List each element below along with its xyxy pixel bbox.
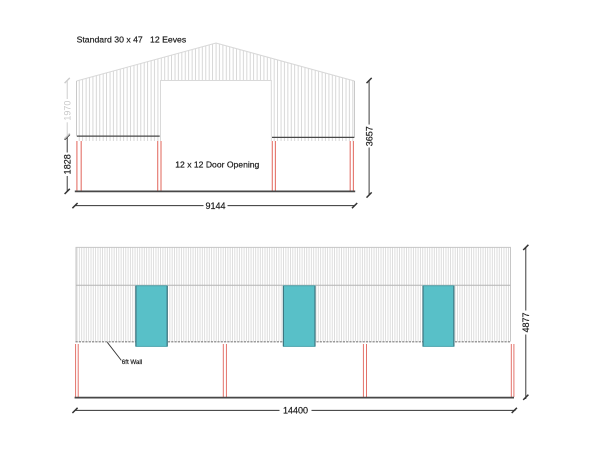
- svg-text:1828: 1828: [62, 154, 72, 174]
- svg-text:14400: 14400: [283, 406, 308, 416]
- svg-text:9144: 9144: [205, 201, 225, 211]
- svg-text:12 x 12 Door Opening: 12 x 12 Door Opening: [175, 160, 259, 170]
- svg-text:4877: 4877: [521, 312, 531, 332]
- svg-text:Standard 30 x 47 12 Eeves: Standard 30 x 47 12 Eeves: [77, 35, 187, 45]
- svg-text:6ft Wall: 6ft Wall: [122, 359, 142, 366]
- svg-text:3657: 3657: [364, 126, 374, 146]
- svg-text:1970: 1970: [62, 101, 72, 121]
